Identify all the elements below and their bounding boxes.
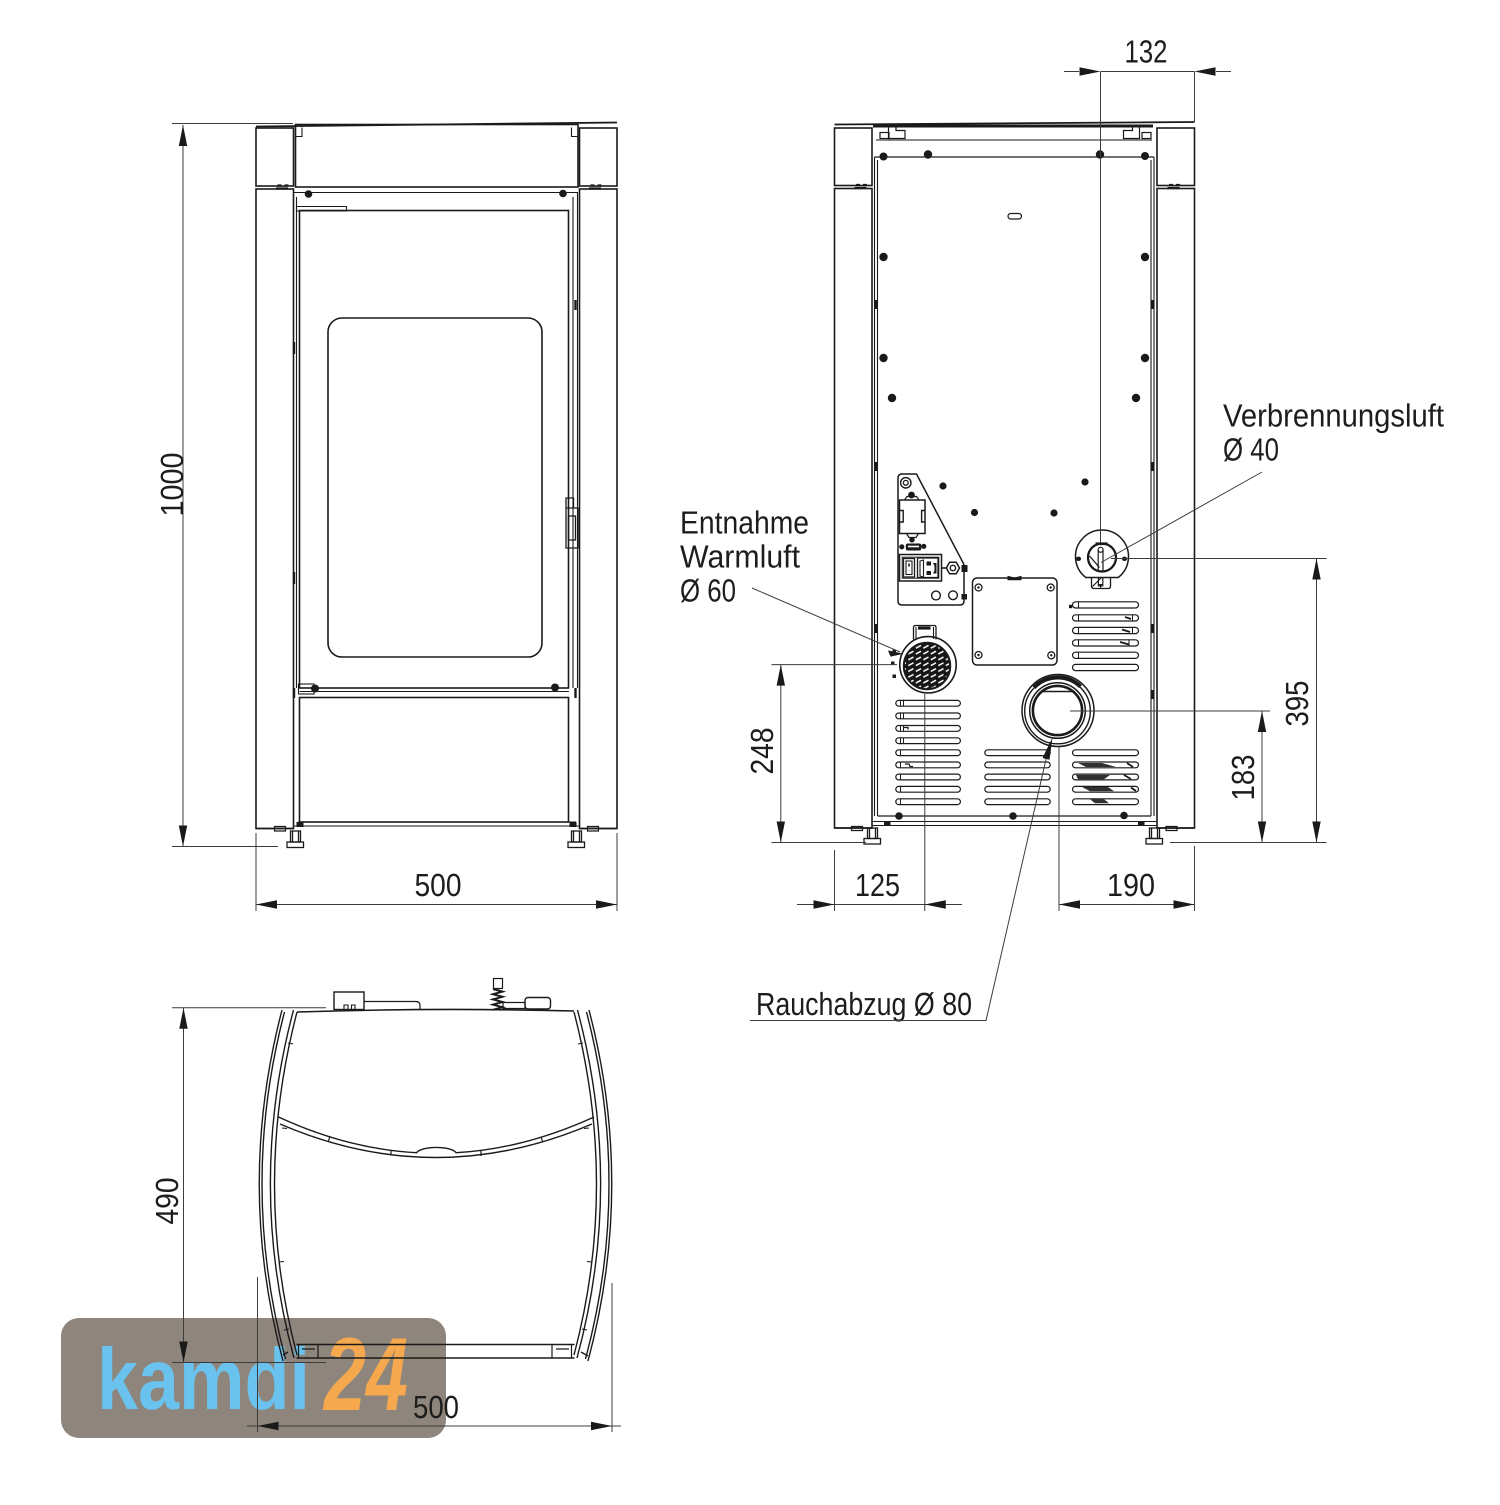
svg-text:500: 500 (415, 867, 462, 903)
svg-text:Rauchabzug Ø 80: Rauchabzug Ø 80 (756, 986, 972, 1022)
svg-text:1000: 1000 (154, 453, 190, 517)
svg-text:Warmluft: Warmluft (680, 539, 800, 575)
svg-text:183: 183 (1225, 755, 1261, 801)
svg-text:Verbrennungsluft: Verbrennungsluft (1223, 398, 1444, 434)
svg-text:490: 490 (149, 1178, 185, 1225)
svg-text:395: 395 (1279, 681, 1315, 727)
svg-text:kamdi: kamdi (97, 1331, 310, 1428)
svg-text:248: 248 (744, 728, 780, 775)
svg-text:Ø 60: Ø 60 (680, 573, 736, 609)
svg-text:125: 125 (855, 867, 900, 903)
svg-text:Entnahme: Entnahme (680, 505, 809, 541)
svg-text:Ø 40: Ø 40 (1223, 432, 1279, 468)
svg-text:190: 190 (1107, 867, 1155, 903)
svg-text:132: 132 (1125, 34, 1168, 70)
svg-text:500: 500 (413, 1389, 459, 1425)
svg-text:24: 24 (323, 1317, 408, 1433)
